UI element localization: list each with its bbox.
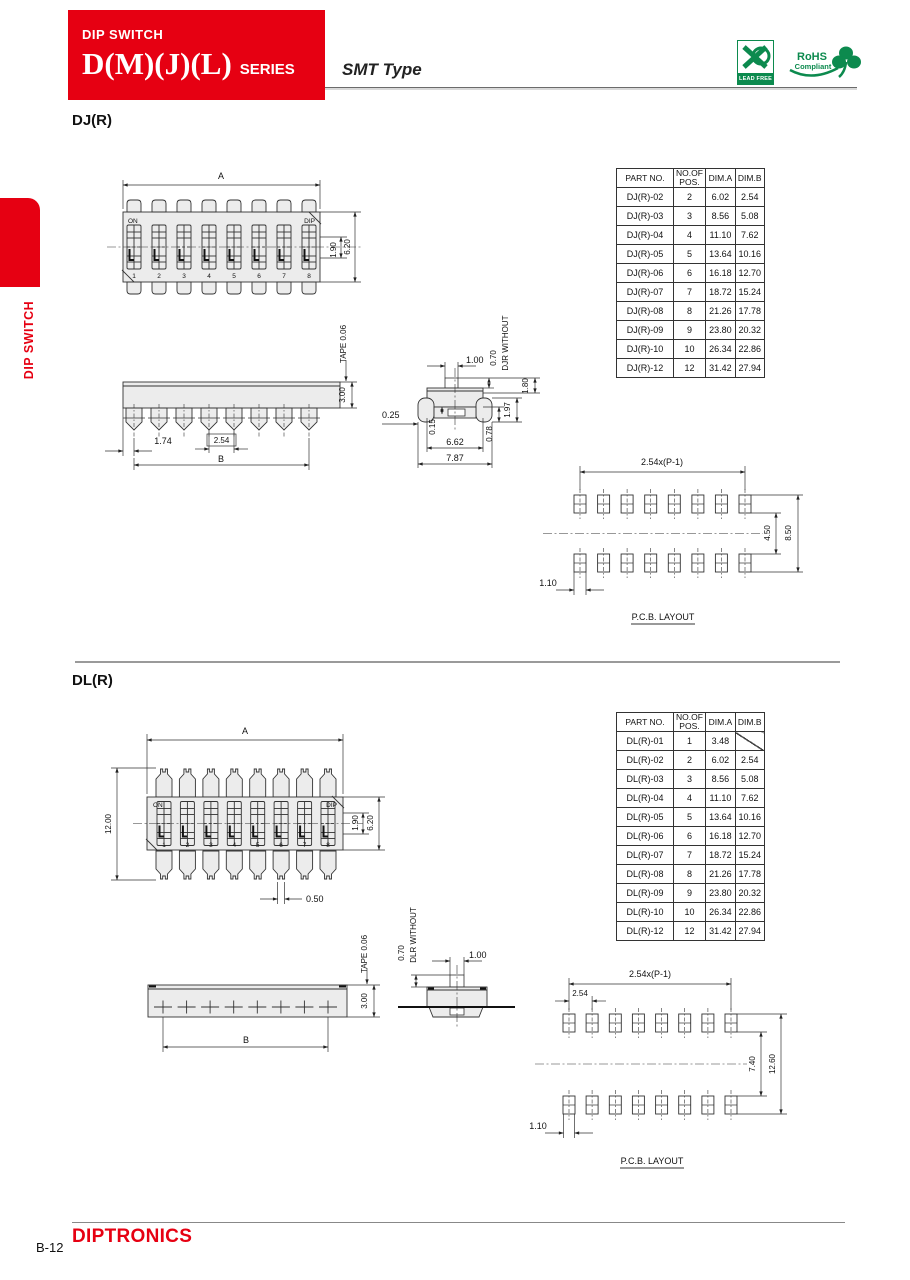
rohs-badge: RoHS Compliant xyxy=(786,40,866,88)
table-cell: DJ(R)-09 xyxy=(617,321,674,340)
table-cell: 7 xyxy=(674,283,706,302)
dim-label: 2.54 xyxy=(572,989,588,998)
dl-pcb-layout-drawing: 2.54x(P-1) 2.54 7.40 12.60 1.10 P.C.B. L… xyxy=(515,948,815,1183)
table-row: DL(R)-07718.7215.24 xyxy=(617,846,765,865)
page-number: B-12 xyxy=(36,1240,63,1255)
table-cell xyxy=(735,732,764,751)
table-cell: 2.54 xyxy=(735,188,764,207)
lead-free-badge: LEAD FREE xyxy=(737,40,774,86)
on-label: ON xyxy=(153,802,163,809)
lead-left xyxy=(418,398,434,422)
dim-label: 12.60 xyxy=(768,1053,777,1074)
table-cell: 12.70 xyxy=(735,827,764,846)
pos-number: 7 xyxy=(282,273,286,280)
table-cell: 17.78 xyxy=(735,302,764,321)
table-cell: DL(R)-12 xyxy=(617,922,674,941)
table-cell: 7.62 xyxy=(735,226,764,245)
dim-label: 1.80 xyxy=(521,378,530,394)
col-dim-b: DIM.B xyxy=(735,713,764,732)
table-cell: DJ(R)-12 xyxy=(617,359,674,378)
table-cell: 31.42 xyxy=(705,359,735,378)
table-cell: 4 xyxy=(674,226,706,245)
dim-label: 0.78 xyxy=(485,426,494,442)
rohs-compliant-text: Compliant xyxy=(795,62,832,71)
table-cell: 12.70 xyxy=(735,264,764,283)
dip-label: DIP xyxy=(326,802,337,809)
section-heading-dl: DL(R) xyxy=(72,672,113,689)
dl-dim-table: PART NO. NO.OFPOS. DIM.A DIM.B DL(R)-011… xyxy=(616,712,765,941)
table-cell: 10.16 xyxy=(735,245,764,264)
dim-label: 1.90 xyxy=(351,815,360,831)
table-cell: DL(R)-07 xyxy=(617,846,674,865)
table-cell: 3 xyxy=(674,207,706,226)
dl-section-drawing: 1.00 0.70 DLR WITHOUT xyxy=(383,905,528,1057)
variant-note: DJR WITHOUT xyxy=(501,315,510,370)
table-row: DJ(R)-0226.022.54 xyxy=(617,188,765,207)
table-cell: 6.02 xyxy=(705,751,735,770)
table-row: DJ(R)-07718.7215.24 xyxy=(617,283,765,302)
table-cell: 8.56 xyxy=(705,770,735,789)
table-cell: 20.32 xyxy=(735,321,764,340)
dim-label: 7.40 xyxy=(748,1056,757,1072)
table-cell: 20.32 xyxy=(735,884,764,903)
series-title: D(M)(J)(L) xyxy=(82,46,232,82)
table-cell: 13.64 xyxy=(705,808,735,827)
dl-top-view-drawing: A 12.00 ON DIP 1 2 3 4 5 6 7 8 1.90 6.20… xyxy=(85,700,395,918)
col-no-of-pos: NO.OFPOS. xyxy=(674,713,706,732)
table-cell: 5.08 xyxy=(735,770,764,789)
table-cell: 26.34 xyxy=(705,903,735,922)
table-cell: DL(R)-10 xyxy=(617,903,674,922)
pos-number: 2 xyxy=(157,273,161,280)
dj-dim-table: PART NO. NO.OFPOS. DIM.A DIM.B DJ(R)-022… xyxy=(616,168,765,378)
table-cell: 22.86 xyxy=(735,340,764,359)
pos-number: 8 xyxy=(307,273,311,280)
table-cell: 13.64 xyxy=(705,245,735,264)
table-row: DL(R)-04411.107.62 xyxy=(617,789,765,808)
table-cell: 5.08 xyxy=(735,207,764,226)
table-row: DJ(R)-0338.565.08 xyxy=(617,207,765,226)
dim-label: 6.20 xyxy=(343,239,352,255)
table-cell: 23.80 xyxy=(705,884,735,903)
header-category: DIP SWITCH xyxy=(82,27,163,42)
dj-side-view-drawing: TAPE 0.06 3.00 1.74 2.54 B xyxy=(95,308,385,478)
table-cell: 2 xyxy=(674,751,706,770)
table-cell: 3 xyxy=(674,770,706,789)
dim-label: 2.54x(P-1) xyxy=(641,457,683,467)
pos-number: 3 xyxy=(182,273,186,280)
table-cell: 10 xyxy=(674,340,706,359)
table-cell: 12 xyxy=(674,359,706,378)
table-row: DL(R)-0338.565.08 xyxy=(617,770,765,789)
dim-label: 0.70 xyxy=(489,350,498,366)
table-cell: DL(R)-08 xyxy=(617,865,674,884)
table-cell: 8 xyxy=(674,865,706,884)
table-cell: 16.18 xyxy=(705,264,735,283)
dj-pcb-layout-drawing: 2.54x(P-1) 4.50 8.50 1.10 P.C.B. LAYOUT xyxy=(525,448,825,633)
table-cell: 6 xyxy=(674,827,706,846)
table-cell: 9 xyxy=(674,321,706,340)
pos-number: 2 xyxy=(186,842,190,849)
pos-number: 6 xyxy=(257,273,261,280)
table-cell: DJ(R)-08 xyxy=(617,302,674,321)
table-cell: 12 xyxy=(674,922,706,941)
table-row: DJ(R)-121231.4227.94 xyxy=(617,359,765,378)
table-cell: DJ(R)-10 xyxy=(617,340,674,359)
table-row: DJ(R)-08821.2617.78 xyxy=(617,302,765,321)
table-row: DL(R)-0226.022.54 xyxy=(617,751,765,770)
dim-label: 0.15 xyxy=(428,419,437,435)
dim-label: 1.97 xyxy=(503,402,512,418)
dim-label: 7.87 xyxy=(446,453,464,463)
dim-label: 1.74 xyxy=(154,436,172,446)
table-cell: DJ(R)-07 xyxy=(617,283,674,302)
dim-label: 6.20 xyxy=(366,815,375,831)
dim-label: 0.70 xyxy=(397,945,406,961)
table-header-row: PART NO. NO.OFPOS. DIM.A DIM.B xyxy=(617,713,765,732)
table-cell: 8.56 xyxy=(705,207,735,226)
table-cell: 10 xyxy=(674,903,706,922)
table-cell: 5 xyxy=(674,808,706,827)
table-cell: DJ(R)-06 xyxy=(617,264,674,283)
pos-number: 5 xyxy=(256,842,260,849)
table-cell: 9 xyxy=(674,884,706,903)
table-row: DJ(R)-06616.1812.70 xyxy=(617,264,765,283)
table-row: DJ(R)-04411.107.62 xyxy=(617,226,765,245)
table-row: DL(R)-06616.1812.70 xyxy=(617,827,765,846)
table-row: DL(R)-08821.2617.78 xyxy=(617,865,765,884)
sidebar-label: DIP SWITCH xyxy=(22,280,38,400)
dim-label: 4.50 xyxy=(763,525,772,541)
table-cell: 16.18 xyxy=(705,827,735,846)
table-cell: DJ(R)-03 xyxy=(617,207,674,226)
table-cell: DL(R)-09 xyxy=(617,884,674,903)
table-row: DL(R)-09923.8020.32 xyxy=(617,884,765,903)
table-cell: DL(R)-01 xyxy=(617,732,674,751)
pos-number: 5 xyxy=(232,273,236,280)
col-dim-a: DIM.A xyxy=(705,169,735,188)
table-row: DJ(R)-09923.8020.32 xyxy=(617,321,765,340)
table-cell: DJ(R)-05 xyxy=(617,245,674,264)
table-cell: 17.78 xyxy=(735,865,764,884)
table-cell: 10.16 xyxy=(735,808,764,827)
table-header-row: PART NO. NO.OFPOS. DIM.A DIM.B xyxy=(617,169,765,188)
dim-label: 1.00 xyxy=(469,950,487,960)
table-cell: 3.48 xyxy=(705,732,735,751)
table-cell: 18.72 xyxy=(705,283,735,302)
table-cell: 6 xyxy=(674,264,706,283)
page-subtitle: SMT Type xyxy=(342,60,422,80)
pos-number: 8 xyxy=(326,842,330,849)
dim-label: TAPE 0.06 xyxy=(339,324,348,363)
col-part-no: PART NO. xyxy=(617,713,674,732)
dim-label: A xyxy=(218,171,224,181)
header-banner: DIP SWITCH D(M)(J)(L) SERIES xyxy=(68,10,325,100)
table-cell: DJ(R)-02 xyxy=(617,188,674,207)
table-row: DL(R)-101026.3422.86 xyxy=(617,903,765,922)
on-label: ON xyxy=(128,218,138,225)
dim-label: 0.50 xyxy=(306,894,324,904)
table-cell: 11.10 xyxy=(705,789,735,808)
table-cell: DL(R)-03 xyxy=(617,770,674,789)
table-cell: 18.72 xyxy=(705,846,735,865)
dip-label: DIP xyxy=(304,218,315,225)
table-cell: DL(R)-02 xyxy=(617,751,674,770)
pos-number: 4 xyxy=(232,842,236,849)
table-cell: 7.62 xyxy=(735,789,764,808)
table-row: DL(R)-05513.6410.16 xyxy=(617,808,765,827)
table-cell: 11.10 xyxy=(705,226,735,245)
dim-label: 2.54 xyxy=(214,436,230,445)
table-cell: 1 xyxy=(674,732,706,751)
dj-top-view-drawing: A ON DIP 1 2 3 4 5 6 7 8 1.90 6.20 xyxy=(95,165,375,320)
pos-number: 7 xyxy=(303,842,307,849)
series-suffix: SERIES xyxy=(240,61,295,78)
table-cell: 15.24 xyxy=(735,283,764,302)
lead-free-icon xyxy=(737,40,774,74)
sidebar-tab xyxy=(0,198,40,287)
table-row: DL(R)-0113.48 xyxy=(617,732,765,751)
pos-number: 4 xyxy=(207,273,211,280)
table-cell: 5 xyxy=(674,245,706,264)
table-cell: 27.94 xyxy=(735,922,764,941)
table-cell: 2 xyxy=(674,188,706,207)
table-cell: 2.54 xyxy=(735,751,764,770)
table-cell: DL(R)-05 xyxy=(617,808,674,827)
table-row: DL(R)-121231.4227.94 xyxy=(617,922,765,941)
pos-number: 1 xyxy=(132,273,136,280)
col-part-no: PART NO. xyxy=(617,169,674,188)
switch-body xyxy=(148,985,347,1017)
dl-side-view-drawing: TAPE 0.06 3.00 B xyxy=(130,928,390,1060)
dim-label: TAPE 0.06 xyxy=(360,934,369,973)
dim-label: 6.62 xyxy=(446,437,464,447)
dim-label: 1.00 xyxy=(466,355,484,365)
dim-label: 3.00 xyxy=(338,387,347,403)
variant-note: DLR WITHOUT xyxy=(409,907,418,963)
table-cell: 8 xyxy=(674,302,706,321)
pcb-layout-caption: P.C.B. LAYOUT xyxy=(632,612,695,622)
dim-label: 1.10 xyxy=(539,578,557,588)
table-cell: DL(R)-06 xyxy=(617,827,674,846)
col-no-of-pos: NO.OFPOS. xyxy=(674,169,706,188)
pos-number: 1 xyxy=(162,842,166,849)
table-row: DJ(R)-101026.3422.86 xyxy=(617,340,765,359)
dim-label: 2.54x(P-1) xyxy=(629,969,671,979)
dim-label: B xyxy=(218,454,224,464)
table-cell: 21.26 xyxy=(705,302,735,321)
table-cell: 27.94 xyxy=(735,359,764,378)
col-dim-a: DIM.A xyxy=(705,713,735,732)
datasheet-page: DIP SWITCH D(M)(J)(L) SERIES SMT Type LE… xyxy=(0,0,910,1280)
table-cell: 21.26 xyxy=(705,865,735,884)
table-cell: 26.34 xyxy=(705,340,735,359)
section-divider xyxy=(75,661,840,663)
table-cell: 7 xyxy=(674,846,706,865)
table-row: DJ(R)-05513.6410.16 xyxy=(617,245,765,264)
pos-number: 6 xyxy=(279,842,283,849)
dim-label: 0.25 xyxy=(382,410,400,420)
table-cell: 6.02 xyxy=(705,188,735,207)
table-cell: 22.86 xyxy=(735,903,764,922)
brand-logo: DIPTRONICS xyxy=(72,1226,192,1248)
dim-label: 1.10 xyxy=(529,1121,547,1131)
table-cell: DJ(R)-04 xyxy=(617,226,674,245)
table-cell: DL(R)-04 xyxy=(617,789,674,808)
table-cell: 15.24 xyxy=(735,846,764,865)
dim-label: 12.00 xyxy=(104,813,113,834)
dim-label: B xyxy=(243,1035,249,1045)
pos-number: 3 xyxy=(209,842,213,849)
header-rule xyxy=(325,87,857,90)
dim-label: 1.90 xyxy=(329,242,338,258)
table-cell: 4 xyxy=(674,789,706,808)
table-cell: 31.42 xyxy=(705,922,735,941)
section-heading-dj: DJ(R) xyxy=(72,112,112,129)
lead-free-label: LEAD FREE xyxy=(737,73,774,85)
pcb-layout-caption: P.C.B. LAYOUT xyxy=(621,1156,684,1166)
lead-right xyxy=(476,398,492,422)
table-cell: 23.80 xyxy=(705,321,735,340)
col-dim-b: DIM.B xyxy=(735,169,764,188)
footer-rule xyxy=(72,1222,845,1223)
dim-label: 8.50 xyxy=(784,525,793,541)
dim-label: 3.00 xyxy=(360,993,369,1009)
dim-label: A xyxy=(242,726,248,736)
